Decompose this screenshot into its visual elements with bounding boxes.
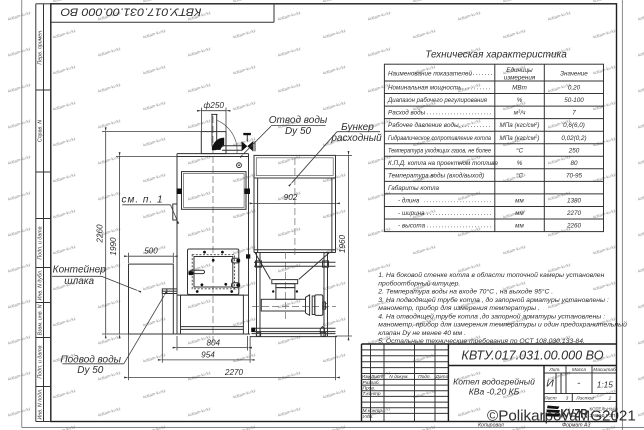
svg-text:Пров.: Пров.: [363, 386, 376, 392]
svg-text:Листов: Листов: [575, 395, 594, 401]
svg-text:Температура уходящих газов, не: Температура уходящих газов, не более: [388, 146, 491, 154]
svg-text:N докум.: N докум.: [389, 374, 408, 380]
svg-text:Подп.: Подп.: [418, 374, 431, 380]
svg-text:2260: 2260: [95, 224, 104, 244]
svg-text:М.контр: М.контр: [363, 408, 383, 414]
svg-text:Масса: Масса: [572, 367, 587, 373]
svg-text:Котел водогрейный: Котел водогрейный: [453, 377, 535, 387]
svg-text:клапан Dy не менее 40 мм .: клапан Dy не менее 40 мм .: [378, 330, 466, 337]
svg-text:манометр, прибор для измерения: манометр, прибор для измерения температу…: [378, 304, 540, 312]
svg-text:-: -: [577, 378, 580, 389]
svg-text:3. На подводящей трубе котла: 3. На подводящей трубе котла , до запорн…: [378, 296, 609, 304]
svg-text:Номинальная мощность: Номинальная мощность: [388, 85, 462, 92]
svg-text:Копировал: Копировал: [478, 423, 504, 429]
svg-text:Лист: Лист: [543, 395, 556, 401]
svg-text:Лист: Лист: [370, 374, 383, 380]
svg-text:расходный: расходный: [330, 133, 382, 144]
svg-text:- ширина: - ширина: [398, 210, 425, 217]
svg-text:0,02(0,2): 0,02(0,2): [561, 135, 586, 142]
svg-text:Изм: Изм: [362, 374, 372, 380]
svg-text:Габариты котла: Габариты котла: [388, 184, 440, 192]
svg-text:7: 7: [572, 110, 576, 117]
svg-text:Т.контр: Т.контр: [363, 391, 381, 397]
svg-text:Значение: Значение: [560, 70, 588, 77]
svg-text:2. Температура воды на входе: 2. Температура воды на входе 70°С , на в…: [377, 288, 553, 296]
svg-text:0,20: 0,20: [568, 85, 581, 92]
svg-text:Подп. и дата: Подп. и дата: [38, 226, 44, 259]
svg-text:1. На боковой стенке котла в: 1. На боковой стенке котла в области топ…: [378, 271, 604, 279]
svg-text:измерения: измерения: [504, 75, 536, 82]
svg-text:Справ. N: Справ. N: [38, 120, 44, 142]
svg-text:Гидравлическое сопротивление к: Гидравлическое сопротивление котла: [388, 134, 491, 142]
svg-text:902: 902: [284, 193, 298, 202]
svg-text:804: 804: [206, 338, 220, 347]
svg-text:4. На отводящей трубе котла ,: 4. На отводящей трубе котла ,до запорной…: [378, 312, 605, 320]
svg-text:ф250: ф250: [203, 101, 224, 110]
svg-text:см. п. 1: см. п. 1: [121, 194, 163, 205]
svg-text:шлака: шлака: [64, 276, 94, 287]
svg-text:мм: мм: [515, 223, 524, 230]
svg-text:Подп. и дата: Подп. и дата: [38, 345, 44, 378]
svg-text:KVZR: KVZR: [561, 406, 588, 420]
svg-text:КВТУ.017.031.00.000 ВО: КВТУ.017.031.00.000 ВО: [461, 348, 603, 362]
svg-text:2270: 2270: [566, 210, 582, 217]
svg-text:ЗАВОД РЭП: ЗАВОД РЭП: [590, 413, 616, 418]
svg-text:Рабочее давление воды: Рабочее давление воды: [388, 121, 459, 129]
svg-text:мм: мм: [515, 198, 524, 205]
svg-text:954: 954: [201, 351, 215, 360]
svg-text:1380: 1380: [567, 198, 582, 205]
svg-text:Дата: Дата: [434, 374, 448, 380]
svg-text:манометр, прибор для измерения: манометр, прибор для измерения температу…: [378, 321, 627, 329]
svg-text:°С: °С: [516, 146, 524, 154]
svg-text:МПа (кгс/см2): МПа (кгс/см2): [500, 121, 540, 129]
svg-text:80: 80: [570, 160, 578, 167]
svg-text:Утв.: Утв.: [363, 414, 374, 420]
svg-text:500: 500: [144, 247, 158, 256]
svg-text:м3/ч: м3/ч: [514, 109, 526, 117]
svg-text:2: 2: [608, 395, 612, 401]
svg-text:МВт: МВт: [512, 85, 527, 92]
svg-text:мм: мм: [515, 210, 524, 217]
svg-text:Контейнер: Контейнер: [53, 264, 106, 275]
svg-text:Перв. примен.: Перв. примен.: [38, 29, 44, 64]
svg-text:Взам. инв. N: Взам. инв. N: [38, 304, 44, 335]
svg-text:- длина: - длина: [398, 197, 420, 205]
svg-text:1960: 1960: [338, 234, 347, 253]
svg-text:°С: °С: [516, 171, 524, 179]
svg-text:Наименование показателей: Наименование показателей: [388, 69, 472, 77]
svg-text:%: %: [517, 97, 523, 104]
svg-text:70-95: 70-95: [566, 172, 583, 179]
svg-text:Dy 50: Dy 50: [77, 365, 104, 376]
svg-text:Единицы: Единицы: [506, 66, 533, 74]
svg-text:250: 250: [568, 147, 580, 154]
svg-text:Диапазон рабочего регулировани: Диапазон рабочего регулирования: [387, 96, 488, 104]
svg-text:2260: 2260: [566, 223, 582, 230]
svg-text:Масштаб: Масштаб: [593, 367, 616, 373]
svg-text:К.П.Д. котла на проектном топл: К.П.Д. котла на проектном топливе: [388, 160, 498, 167]
svg-text:Отвод воды: Отвод воды: [269, 115, 328, 126]
svg-text:2270: 2270: [224, 368, 244, 377]
svg-text:%: %: [517, 160, 523, 167]
svg-text:50-100: 50-100: [564, 97, 584, 104]
svg-text:Формат А3: Формат А3: [562, 423, 590, 429]
svg-text:Температура воды (вход/выход): Температура воды (вход/выход): [388, 171, 484, 179]
svg-text:- высота: - высота: [398, 223, 426, 230]
svg-text:Расход воды: Расход воды: [388, 109, 426, 117]
svg-text:Инв. N подл.: Инв. N подл.: [38, 389, 44, 420]
svg-text:КВа -0,20 КБ: КВа -0,20 КБ: [469, 386, 520, 396]
svg-text:Лит.: Лит.: [548, 367, 560, 373]
svg-text:Инв. N дубл.: Инв. N дубл.: [38, 270, 44, 301]
svg-text:Техническая характеристика: Техническая характеристика: [425, 50, 567, 61]
svg-text:пробоотборный штуцер.: пробоотборный штуцер.: [378, 279, 460, 287]
svg-text:1:15: 1:15: [597, 379, 614, 389]
svg-text:КВТУ.017.031.00.000 ВО: КВТУ.017.031.00.000 ВО: [60, 6, 202, 18]
svg-text:Бункер: Бункер: [341, 122, 374, 133]
svg-text:1990: 1990: [109, 237, 118, 256]
svg-text:3: 3: [566, 395, 569, 401]
svg-text:МПа (кгс/см2): МПа (кгс/см2): [500, 134, 540, 142]
svg-text:КОТЕЛЬНЫЙ: КОТЕЛЬНЫЙ: [590, 405, 618, 412]
svg-text:0,6(6,0): 0,6(6,0): [563, 122, 585, 129]
svg-text:Dy 50: Dy 50: [285, 126, 312, 137]
svg-text:И: И: [546, 378, 554, 390]
svg-text:Разраб.: Разраб.: [363, 380, 380, 386]
